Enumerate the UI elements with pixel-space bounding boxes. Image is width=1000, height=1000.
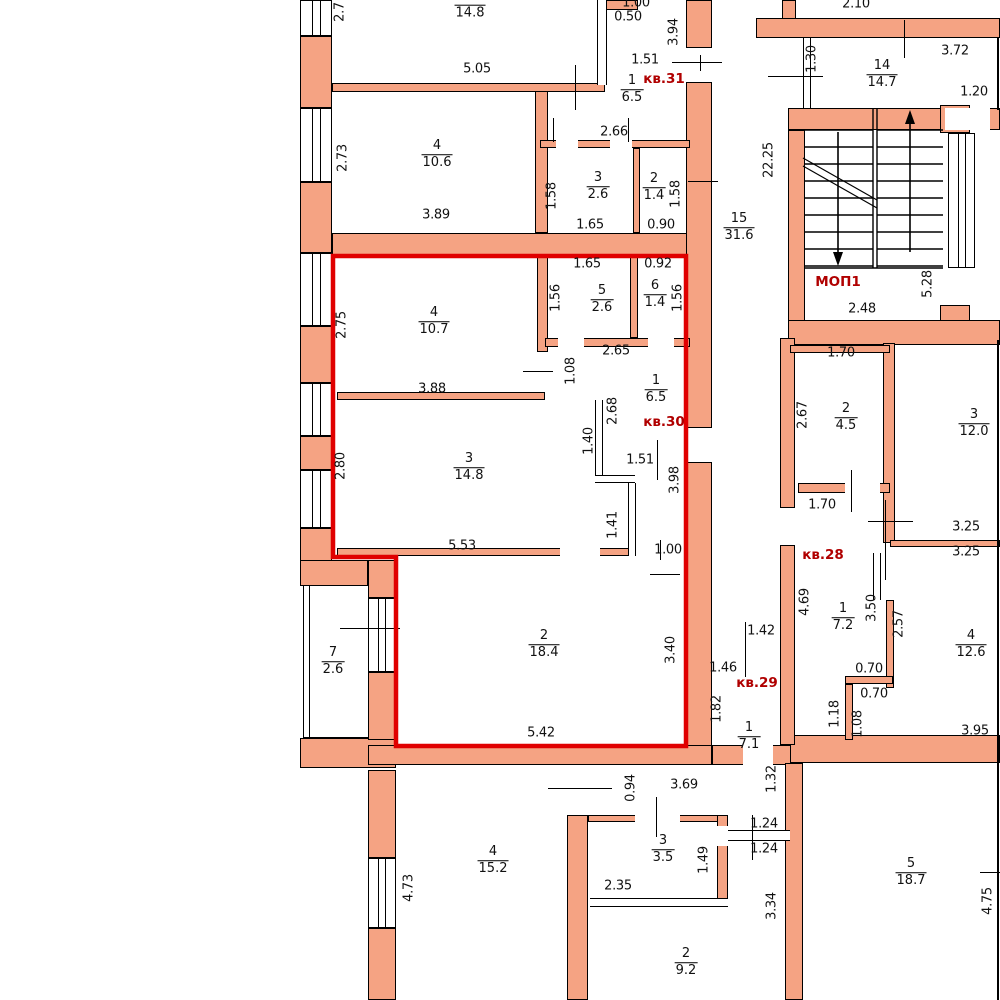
wall: [368, 672, 396, 740]
room-number: 4: [478, 845, 509, 861]
room-number: 2: [835, 402, 858, 418]
room-area: 14.7: [867, 75, 898, 91]
dimension-label: 0.70: [860, 688, 888, 701]
apartment-tag: кв.28: [802, 547, 844, 563]
dimension-line: [745, 622, 746, 677]
room-area: 18.7: [896, 873, 927, 889]
dimension-label: 1.58: [546, 182, 559, 210]
room-label: 415.2: [478, 845, 509, 877]
room-area: 15.2: [478, 861, 509, 877]
dimension-label: 2.35: [604, 880, 632, 893]
partition: [728, 830, 790, 841]
dimension-label: 1.65: [573, 258, 601, 271]
wall: [332, 233, 712, 256]
dimension-line: [628, 118, 629, 142]
dimension-line: [672, 62, 722, 63]
dimension-label: 3.98: [669, 466, 682, 494]
wall: [300, 436, 332, 470]
room-number: 4: [422, 139, 453, 155]
room-label: 410.7: [419, 306, 450, 338]
wall-thin: [633, 148, 640, 233]
window: [300, 0, 332, 36]
dimension-label: 1.24: [750, 818, 778, 831]
dimension-label: 1.08: [565, 357, 578, 385]
room-number: 5: [896, 857, 927, 873]
dimension-label: 0.92: [644, 258, 672, 271]
room-area: 7.1: [738, 737, 761, 753]
dimension-line: [309, 585, 310, 738]
wall: [300, 36, 332, 108]
wall-thin: [630, 256, 638, 338]
door-opening: [945, 108, 990, 130]
dimension-label: 1.56: [550, 284, 563, 312]
wall: [368, 928, 396, 1000]
dimension-label: 3.94: [668, 18, 681, 46]
dimension-label: 1.56: [672, 284, 685, 312]
room-number: 1: [832, 602, 855, 618]
dimension-label: 1.82: [711, 695, 724, 723]
dimension-label: 0.70: [855, 663, 883, 676]
room-label: 72.6: [322, 646, 345, 678]
room-label: 52.6: [591, 284, 614, 316]
room-area: 12.0: [959, 424, 990, 440]
room-label: 24.5: [835, 402, 858, 434]
dimension-label: 5.28: [922, 270, 935, 298]
dimension-label: 0.90: [647, 219, 675, 232]
door-opening: [686, 428, 712, 462]
dimension-label: 2.7: [334, 2, 347, 22]
room-area: 10.6: [422, 155, 453, 171]
room-label: 14.8: [455, 5, 486, 22]
room-label: 518.7: [896, 857, 927, 889]
dimension-label: 1.20: [960, 86, 988, 99]
door-opening: [635, 815, 680, 822]
room-area: 12.6: [956, 645, 987, 661]
room-area: 1.4: [644, 295, 667, 311]
room-area: 6.5: [645, 390, 668, 406]
floor-plan: 1.000.503.941.512.75.052.662.733.891.581…: [0, 0, 1000, 1000]
wall: [788, 320, 1000, 345]
dimension-label: 1.24: [750, 843, 778, 856]
window: [948, 133, 975, 268]
dimension-line: [700, 55, 701, 71]
dimension-label: 22.25: [763, 142, 776, 178]
dimension-label: 0.94: [625, 774, 638, 802]
dimension-label: 0.50: [614, 11, 642, 24]
partition: [628, 483, 636, 556]
partition: [595, 475, 635, 483]
dimension-line: [340, 628, 400, 629]
dimension-line: [548, 788, 612, 789]
wall: [785, 763, 803, 1000]
dimension-label: 2.65: [602, 345, 630, 358]
dimension-label: 3.69: [670, 779, 698, 792]
dimension-label: 2.10: [842, 0, 870, 11]
wall-thin: [890, 540, 1000, 547]
door-opening: [558, 338, 584, 347]
dimension-label: 1.30: [806, 45, 819, 73]
dimension-label: 1.70: [827, 347, 855, 360]
dimension-line: [303, 585, 304, 738]
room-number: 3: [454, 452, 485, 468]
room-label: 1414.7: [867, 59, 898, 91]
dimension-label: 3.34: [766, 892, 779, 920]
room-number: 5: [591, 284, 614, 300]
room-area: 14.8: [454, 468, 485, 484]
room-area: 2.6: [322, 662, 345, 678]
wall: [368, 560, 396, 598]
room-number: 3: [959, 408, 990, 424]
room-number: 15: [724, 212, 755, 228]
room-area: 14.8: [455, 6, 486, 22]
room-area: 2.6: [591, 300, 614, 316]
wall: [368, 770, 396, 858]
room-label: 61.4: [644, 279, 667, 311]
dimension-label: 3.25: [952, 546, 980, 559]
dimension-label: 2.66: [600, 126, 628, 139]
dimension-label: 1.41: [607, 511, 620, 539]
dimension-line: [997, 38, 999, 110]
dimension-line: [885, 500, 886, 580]
room-number: 3: [587, 171, 610, 187]
room-area: 3.5: [652, 850, 675, 866]
wall: [686, 82, 712, 428]
dimension-label: 1.58: [670, 180, 683, 208]
door-opening: [780, 508, 795, 545]
apartment-tag: кв.31: [643, 71, 685, 87]
dimension-line: [523, 371, 553, 372]
dimension-label: 2.75: [336, 311, 349, 339]
window: [300, 383, 332, 436]
apartment-tag: кв.30: [643, 414, 685, 430]
room-label: 314.8: [454, 452, 485, 484]
door-opening: [648, 338, 674, 347]
window: [300, 470, 332, 528]
wall: [567, 815, 588, 1000]
dimension-label: 1.00: [622, 0, 650, 10]
wall: [686, 0, 712, 48]
wall: [368, 745, 712, 765]
dimension-label: 1.00: [654, 544, 682, 557]
door-opening: [717, 826, 728, 846]
wall: [300, 560, 368, 586]
room-area: 18.4: [529, 645, 560, 661]
wall: [790, 735, 1000, 763]
room-label: 16.5: [621, 74, 644, 106]
room-number: 2: [675, 947, 698, 963]
dimension-line: [575, 65, 576, 110]
room-label: 21.4: [643, 172, 666, 204]
room-number: 1: [738, 721, 761, 737]
room-label: 16.5: [645, 374, 668, 406]
wall: [780, 338, 795, 508]
dimension-label: 3.50: [866, 594, 879, 622]
dimension-label: 1.46: [709, 662, 737, 675]
dimension-label: 3.89: [422, 209, 450, 222]
dimension-label: 2.80: [335, 452, 348, 480]
dimension-label: 1.65: [576, 219, 604, 232]
dimension-label: 3.95: [961, 725, 989, 738]
dimension-label: 4.75: [982, 887, 995, 915]
apartment-tag: МОП1: [815, 274, 861, 290]
room-area: 2.6: [587, 187, 610, 203]
wall: [300, 528, 332, 562]
window: [368, 858, 396, 928]
dimension-line: [303, 737, 368, 738]
window: [368, 598, 396, 672]
partition: [597, 0, 607, 85]
room-number: 6: [644, 279, 667, 295]
room-label: 33.5: [652, 834, 675, 866]
dimension-line: [768, 76, 823, 77]
dimension-label: 2.67: [797, 401, 810, 429]
room-area: 31.6: [724, 228, 755, 244]
wall-thin: [332, 83, 605, 92]
dimension-label: 2.68: [607, 397, 620, 425]
dimension-label: 1.49: [698, 846, 711, 874]
window: [300, 108, 332, 182]
room-label: 1531.6: [724, 212, 755, 244]
dimension-label: 2.57: [893, 610, 906, 638]
wall: [756, 18, 1000, 38]
room-number: 14: [867, 59, 898, 75]
room-area: 10.7: [419, 322, 450, 338]
door-opening: [686, 48, 712, 82]
dimension-label: 1.08: [852, 710, 865, 738]
dimension-label: 3.72: [941, 45, 969, 58]
dimension-label: 2.48: [848, 303, 876, 316]
dimension-label: 3.40: [665, 636, 678, 664]
stairs-up-arrow-icon: [905, 110, 915, 252]
room-area: 9.2: [675, 963, 698, 979]
room-label: 412.6: [956, 629, 987, 661]
dimension-label: 1.18: [829, 700, 842, 728]
wall: [686, 462, 712, 747]
room-number: 2: [529, 629, 560, 645]
dimension-line: [904, 20, 905, 58]
wall: [535, 85, 548, 233]
dimension-line: [657, 440, 658, 480]
dimension-label: 5.42: [527, 727, 555, 740]
dimension-line: [656, 797, 657, 837]
dimension-label: 1.40: [583, 427, 596, 455]
wall: [300, 182, 332, 253]
dimension-line: [650, 574, 680, 575]
dimension-line: [303, 585, 368, 586]
door-opening: [560, 548, 600, 556]
room-number: 4: [419, 306, 450, 322]
room-area: 6.5: [621, 90, 644, 106]
dimension-label: 1.51: [631, 54, 659, 67]
dimension-label: 1.70: [808, 499, 836, 512]
dimension-label: 1.32: [766, 765, 779, 793]
dimension-label: 5.53: [448, 540, 476, 553]
dimension-label: 1.51: [626, 454, 654, 467]
dimension-label: 5.05: [463, 63, 491, 76]
room-number: 3: [652, 834, 675, 850]
wall: [788, 130, 805, 348]
wall-thin: [845, 676, 893, 684]
dimension-line: [997, 340, 999, 1000]
stairs-down-arrow-icon: [833, 132, 843, 266]
room-label: 218.4: [529, 629, 560, 661]
wall: [780, 545, 795, 745]
room-label: 312.0: [959, 408, 990, 440]
dimension-label: 4.73: [403, 874, 416, 902]
dimension-line: [688, 181, 718, 182]
apartment-tag: кв.29: [736, 675, 778, 691]
partition: [590, 898, 728, 907]
room-label: 17.2: [832, 602, 855, 634]
room-area: 1.4: [643, 188, 666, 204]
dimension-label: 1.42: [747, 625, 775, 638]
dimension-line: [553, 118, 554, 142]
dimension-line: [851, 470, 852, 512]
room-area: 4.5: [835, 418, 858, 434]
room-label: 32.6: [587, 171, 610, 203]
room-label: 29.2: [675, 947, 698, 979]
dimension-label: 3.88: [418, 383, 446, 396]
dimension-label: 2.73: [337, 144, 350, 172]
room-area: 7.2: [832, 618, 855, 634]
dimension-label: 3.25: [952, 521, 980, 534]
room-number: 1: [621, 74, 644, 90]
room-number: 1: [645, 374, 668, 390]
dimension-label: 4.69: [799, 588, 812, 616]
room-number: 4: [956, 629, 987, 645]
room-number: 7: [322, 646, 345, 662]
room-label: 410.6: [422, 139, 453, 171]
room-number: 2: [643, 172, 666, 188]
window: [300, 253, 332, 326]
dimension-line: [868, 521, 913, 522]
door-opening: [556, 140, 578, 148]
room-label: 17.1: [738, 721, 761, 753]
wall: [300, 326, 332, 383]
